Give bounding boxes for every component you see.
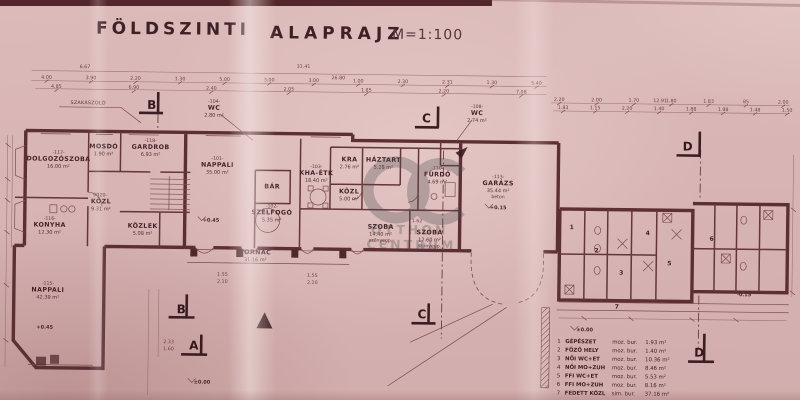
- wing-number: 2: [594, 247, 598, 254]
- room-rarea: 5.35 m²: [262, 217, 282, 223]
- dimension-label: 3.00: [308, 78, 319, 84]
- inner-dim: 1.55: [217, 272, 228, 278]
- room-label-bar: BÁR: [264, 181, 280, 190]
- level-minus015: -0.15: [737, 292, 752, 298]
- legend-cell: 6: [557, 382, 561, 388]
- porch-column: [291, 250, 298, 258]
- annotation-szakaszolo: SZAKASZOLÓ: [70, 99, 105, 106]
- room-rname: WC: [208, 105, 220, 112]
- dim-overall: 6.67: [80, 64, 91, 70]
- dimension-label: 3.90: [86, 75, 97, 81]
- legend-cell: FFI WC+ET: [565, 373, 598, 379]
- legend-cell: GÉPÉSZET: [565, 337, 596, 345]
- wing-number: 6: [710, 236, 714, 243]
- dimension-label: 5.00: [219, 77, 230, 83]
- dimension-label: 1.70: [629, 98, 640, 104]
- dimension-label: 1.83: [558, 105, 569, 111]
- room-rname: MOSDÓ: [89, 141, 118, 150]
- legend-cell: moz. bur.: [612, 348, 637, 354]
- porch-column: [190, 248, 197, 256]
- room-rname: KÖZLEK: [128, 221, 159, 230]
- north-triangle: [256, 312, 272, 328]
- room-label-kozlek: KÖZLEK5.08 m²: [127, 221, 158, 237]
- dimension-label: 2.00: [778, 100, 789, 106]
- wing-number: 7: [615, 304, 619, 311]
- level-zero: ±0.00: [576, 327, 593, 333]
- room-label-gardrob: -118-GARDROB6.93 m²: [132, 138, 170, 158]
- legend-cell: 2: [557, 348, 561, 354]
- room-rarea: 1.90 m²: [94, 151, 114, 157]
- room-rname: DOLGOZÓSZOBA: [26, 153, 90, 163]
- room-rname: NAPPALI: [31, 287, 64, 294]
- dimension-label: 1.80: [666, 98, 677, 104]
- room-label-kra: KRA2.76 m²: [340, 156, 360, 170]
- level-zero: ±0.00: [194, 379, 211, 385]
- dimension-label: 1.83: [703, 99, 714, 105]
- room-rname: TORNÁC: [239, 247, 271, 256]
- dimension-label: 1.30: [175, 76, 186, 82]
- legend-cell: 1.40 m²: [645, 348, 666, 355]
- watermark-line2: CENTRUM: [366, 237, 456, 253]
- room-rname: KÖZL: [339, 186, 359, 195]
- legend-cell: moz. bur.: [612, 374, 637, 380]
- dimension-label: 1.48: [750, 107, 761, 113]
- legend: 1GÉPÉSZETmoz. bur.1.93 m²2FŐZŐ HELYmoz. …: [557, 337, 670, 398]
- dim-a-marker: 2.33: [163, 339, 174, 345]
- room-label-wc-104: -104-WC2.80 m²: [204, 99, 224, 119]
- room-label-kha-etk: -103-KHA-ÉTK18.40 m²: [299, 164, 334, 184]
- dimension-label: 1.85: [361, 88, 372, 94]
- legend-cell: 1.93 m²: [645, 339, 666, 346]
- dimension-label: 2.20: [622, 106, 633, 112]
- room-rname: SZÉLFOGÓ: [251, 207, 292, 217]
- room-rarea: 9.31 m²: [91, 206, 111, 212]
- room-rarea: 16.00 m²: [47, 164, 70, 170]
- legend-cell: 5: [557, 373, 561, 379]
- room-rarea: 35.44 m²: [487, 188, 510, 194]
- room-label-garazs: -113-GARÁZS35.44 m²beton: [482, 174, 514, 200]
- legend-cell: 3: [557, 356, 561, 362]
- section-marker-c-bottom: C: [418, 307, 427, 321]
- section-marker-a-bottom: A: [189, 338, 199, 352]
- room-rarea: 5.00 m²: [339, 196, 359, 202]
- room-rarea: 18.40 m²: [305, 178, 328, 184]
- dimension-label: 2.05: [283, 87, 294, 93]
- wing-number: 1: [570, 224, 574, 231]
- room-rname: GARDROB: [132, 144, 170, 151]
- section-marker-d-top: D: [683, 139, 693, 153]
- room-label-dolgozoszoba: -117-DOLGOZÓSZOBA16.00 m²: [26, 149, 90, 170]
- dimension-label: 2.20: [554, 97, 565, 103]
- dimension-label: 2.00: [591, 97, 602, 103]
- corner-mark: [50, 355, 59, 364]
- legend-cell: NŐI MO+ZUH: [565, 364, 606, 371]
- section-marker-d-bottom: D: [694, 346, 704, 360]
- room-rname: GARÁZS: [483, 178, 514, 187]
- legend-cell: NŐI WC+ET: [565, 355, 600, 362]
- room-label-nappali-left: -115-NAPPALI42.39 m²: [31, 281, 64, 301]
- dimension-label: 1.98: [718, 107, 729, 113]
- legend-cell: moz. bur.: [612, 340, 637, 346]
- room-label-wc-108: -108-WC2.74 m²: [467, 104, 487, 124]
- room-rarea: 12.30 m²: [38, 230, 61, 236]
- dimension-label: 1.00: [353, 78, 364, 84]
- section-marker-c-top: C: [422, 111, 431, 125]
- room-rarea: 2.74 m²: [467, 118, 487, 124]
- room-label-mosdo: MOSDÓ1.90 m²: [89, 141, 118, 157]
- room-rarea: 31.16 m²: [244, 257, 267, 263]
- level-plus015: +0.15: [490, 205, 507, 211]
- room-labels: -117-DOLGOZÓSZOBA16.00 m² MOSDÓ1.90 m² -…: [25, 96, 515, 306]
- dimension-label: 2.20: [438, 88, 449, 94]
- room-rname: NAPPALI: [201, 162, 234, 169]
- paper-bottom-shadow: [0, 390, 800, 400]
- dimension-label: 1.88: [686, 106, 697, 112]
- room-rarea: 2.76 m²: [340, 164, 360, 170]
- wing-number: 5: [667, 260, 671, 267]
- dim-row: 1.831.152.201.401.881.981.481.50: [558, 105, 793, 116]
- floor-plan-drawing: 6.67 31.41 26.80 12.91 4.003.902.201.305…: [0, 0, 800, 400]
- section-marker-b-bottom: B: [177, 302, 186, 316]
- corner-mark: [36, 357, 46, 366]
- room-rarea: 6.93 m²: [141, 152, 161, 158]
- room-rname: KRA: [342, 156, 358, 163]
- dimension-label: 2.20: [130, 76, 141, 82]
- dimension-label: 2.40: [206, 86, 217, 92]
- inner-dim: 1.55: [307, 273, 318, 279]
- legend-cell: 8.46 m²: [645, 365, 666, 372]
- inner-dim: 2.10: [217, 279, 228, 285]
- dimension-label: 2.31: [442, 80, 453, 86]
- dim-overall: 26.80: [331, 75, 345, 81]
- legend-cell: 10.36 m²: [645, 356, 670, 363]
- room-label-konyha: -116-KONYHA12.30 m²: [33, 216, 66, 236]
- room-rarea: 35.00 m²: [206, 170, 229, 176]
- wing-number: 4: [646, 230, 650, 237]
- dim-overall: 31.41: [297, 64, 311, 70]
- level-plus045: +0.45: [36, 325, 53, 331]
- dimension-label: 1.15: [590, 105, 601, 111]
- dimension-label: 1.30: [487, 80, 498, 86]
- room-rname: WC: [471, 110, 483, 117]
- dimension-label: 6.90: [128, 85, 139, 91]
- wing-number: 3: [619, 270, 623, 277]
- legend-cell: moz. bur.: [612, 365, 637, 371]
- legend-cell: 1: [557, 339, 561, 345]
- dim-a-marker: 1.60: [163, 346, 174, 352]
- room-rarea: 42.39 m²: [36, 295, 59, 301]
- room-label-tornac: TORNÁC31.16 m²: [239, 247, 271, 263]
- dimension-label: 1.50: [782, 108, 793, 114]
- dimension-label: 85: [743, 99, 749, 105]
- walls: [13, 130, 791, 390]
- inner-dim: 90: [93, 192, 99, 198]
- section-marker-b-top: B: [147, 98, 156, 112]
- legend-cell: FŐZŐ HELY: [565, 347, 599, 354]
- level-plus045: +0.45: [203, 218, 220, 224]
- room-rarea: 4.69 m²: [427, 179, 447, 185]
- room-rarea: 5.08 m²: [133, 231, 153, 237]
- legend-cell: 4: [557, 365, 561, 371]
- legend-cell: moz. bur.: [612, 383, 637, 389]
- dimension-label: 7.08: [516, 89, 527, 95]
- room-label-szelfogo: -102-SZÉLFOGÓ5.35 m²: [251, 203, 292, 223]
- dimension-label: 1.40: [654, 106, 665, 112]
- dimension-label: 2.30: [397, 79, 408, 85]
- room-rname: KONYHA: [33, 222, 65, 229]
- room-rname: KHA-ÉTK: [299, 168, 334, 177]
- dimension-label: 5.40: [531, 81, 542, 87]
- legend-cell: 5.53 m²: [645, 373, 666, 380]
- inner-dim: 2.10: [307, 280, 318, 286]
- room-label-nappali-mid: -101-NAPPALI35.00 m²: [201, 156, 234, 176]
- dimension-label: 4.00: [41, 75, 52, 81]
- watermark-line1: OTTHON: [371, 222, 449, 238]
- room-rfloor: beton: [491, 194, 504, 200]
- room-label-kozl-mid: KÖZL5.00 m²: [339, 186, 359, 202]
- dimension-label: 4.85: [51, 84, 62, 90]
- dimension-label: 3.00: [264, 77, 275, 83]
- legend-cell: moz. bur.: [612, 357, 637, 363]
- room-rarea: 2.80 m²: [204, 113, 224, 119]
- room-rname: BÁR: [264, 181, 280, 190]
- legend-cell: 8.16 m²: [645, 382, 666, 389]
- porch-column: [339, 250, 346, 258]
- legend-cell: FFI MO+ZUH: [565, 382, 604, 388]
- wall-section-sample: [541, 308, 550, 388]
